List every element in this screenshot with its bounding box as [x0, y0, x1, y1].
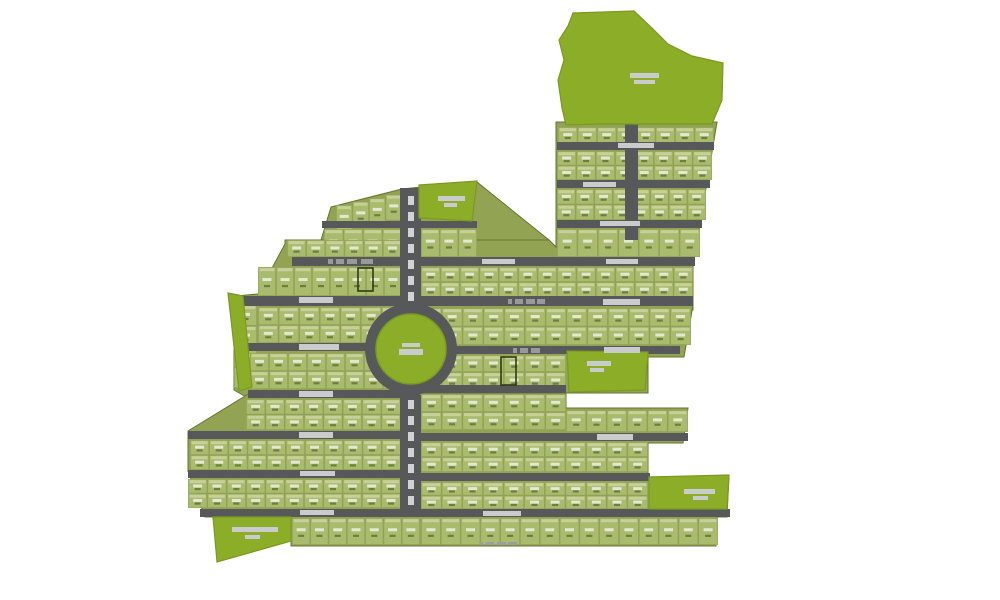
plot-number-label: [305, 314, 314, 317]
plot-area-text: [470, 451, 476, 453]
plot[interactable]: [312, 267, 329, 295]
plot-dimension-strip: [599, 128, 615, 131]
plot-dimension-strip: [384, 241, 400, 244]
plot-area-text: [428, 466, 434, 468]
plot[interactable]: [560, 518, 579, 544]
plot-area-text: [638, 199, 644, 201]
road-name-strip: [482, 259, 515, 264]
plot-area-text: [300, 285, 306, 287]
plot-number-label: [426, 528, 435, 531]
plot[interactable]: [481, 518, 500, 544]
plot-dimension-strip: [342, 326, 359, 329]
plot-dimension-strip: [248, 416, 264, 419]
road-name-strip: [300, 510, 334, 515]
plot-area-text: [264, 285, 270, 287]
plot-dimension-strip: [383, 456, 399, 459]
plot-number-label: [640, 288, 649, 291]
plot-area-text: [602, 160, 608, 162]
plot-dimension-strip: [520, 268, 536, 271]
plot[interactable]: [311, 518, 328, 544]
plot-number-label: [195, 446, 204, 449]
plot-area-text: [641, 276, 647, 278]
plot-area-text: [254, 449, 260, 451]
plot-number-label: [446, 273, 455, 276]
plot-number-label: [387, 485, 396, 488]
plot-dimension-strip: [581, 519, 598, 522]
plot-number-label: [583, 133, 592, 136]
road-horizontal: [322, 221, 477, 228]
plot-area-text: [573, 466, 579, 468]
plot-dimension-strip: [546, 497, 563, 500]
plot-area-text: [694, 214, 700, 216]
plot[interactable]: [421, 518, 440, 544]
plot[interactable]: [520, 518, 539, 544]
plot-area-text: [552, 490, 558, 492]
plot-dimension-strip: [249, 456, 265, 459]
plot-area-text: [603, 291, 609, 293]
plot-number-label: [446, 288, 455, 291]
plot-number-label: [613, 463, 622, 466]
plot-number-label: [331, 360, 340, 363]
plot-number-label: [510, 361, 519, 364]
plot-number-label: [504, 288, 513, 291]
plot-dimension-strip: [500, 268, 516, 271]
plot-dimension-strip: [306, 400, 322, 403]
plot-area-text: [635, 451, 641, 453]
plot-number-label: [562, 288, 571, 291]
plot-area-text: [349, 424, 355, 426]
plot-area-text: [253, 502, 259, 504]
plot-dimension-strip: [568, 411, 585, 414]
plot-area-text: [448, 535, 454, 537]
plot-number-label: [562, 195, 571, 198]
plot-number-label: [571, 463, 580, 466]
plot-dimension-strip: [383, 480, 399, 483]
plot-number-label: [264, 332, 273, 335]
plot-area-text: [662, 137, 668, 139]
plot-number-label: [562, 157, 571, 160]
plot-number-label: [315, 528, 324, 531]
plot[interactable]: [292, 518, 309, 544]
plot-dimension-strip: [342, 308, 359, 311]
road-name-dash: [513, 348, 517, 353]
plot-dimension-strip: [403, 519, 418, 522]
plot-number-label: [601, 273, 610, 276]
plot-area-text: [505, 291, 511, 293]
scale-text: [497, 542, 506, 545]
plot-number-label: [352, 528, 361, 531]
plot-number-label: [523, 288, 532, 291]
plot-area-text: [447, 276, 453, 278]
plot-band: [421, 518, 717, 544]
plot-number-label: [692, 210, 701, 213]
road-name-dash: [328, 259, 333, 264]
plot-number-label: [593, 334, 602, 337]
plot-number-label: [348, 420, 357, 423]
plot-number-label: [530, 419, 539, 422]
plot-number-label: [445, 240, 454, 243]
plot-dimension-strip: [384, 230, 400, 233]
plot-dimension-strip: [505, 443, 522, 446]
plot-dimension-strip: [326, 456, 342, 459]
plot-dimension-strip: [567, 483, 584, 486]
plot[interactable]: [461, 518, 480, 544]
plot-area-text: [552, 466, 558, 468]
plot-dimension-strip: [652, 206, 667, 209]
plot-number-label: [523, 273, 532, 276]
plot-dimension-strip: [539, 283, 555, 286]
plot-number-label: [353, 278, 362, 281]
plot-number-label: [489, 463, 498, 466]
plot-area-text: [511, 423, 517, 425]
plot-number-label: [572, 418, 581, 421]
plot[interactable]: [580, 518, 599, 544]
plot-number-label: [348, 485, 357, 488]
plot-area-text: [298, 535, 304, 537]
plot-dimension-strip: [547, 373, 565, 376]
plot-dimension-strip: [651, 328, 669, 331]
plot-area-text: [286, 336, 292, 338]
plot-area-text: [351, 251, 357, 253]
plot-area-text: [635, 466, 641, 468]
plot-number-label: [633, 418, 642, 421]
plot-area-text: [265, 336, 271, 338]
plot-area-text: [428, 291, 434, 293]
plot-dimension-strip: [290, 354, 306, 357]
plot-area-text: [525, 291, 531, 293]
plot[interactable]: [659, 518, 678, 544]
road-median-dash: [408, 416, 414, 425]
plot-area-text: [565, 137, 571, 139]
plot-area-text: [276, 382, 282, 384]
plot[interactable]: [276, 267, 293, 295]
road-median-dash: [408, 432, 414, 441]
road-horizontal: [421, 473, 650, 481]
plot-number-label: [447, 448, 456, 451]
plot-number-label: [583, 240, 592, 243]
plot-dimension-strip: [248, 400, 264, 403]
plot-dimension-strip: [346, 241, 362, 244]
plot[interactable]: [619, 518, 638, 544]
plot-area-text: [333, 364, 339, 366]
plot-area-text: [614, 451, 620, 453]
plot-dimension-strip: [286, 495, 302, 498]
plot-dimension-strip: [301, 308, 318, 311]
plot[interactable]: [680, 229, 700, 256]
plot-area-text: [564, 291, 570, 293]
plot-dimension-strip: [589, 309, 607, 312]
site-plan-canvas: [0, 0, 1000, 600]
road-name-dash: [508, 299, 512, 304]
road-horizontal: [421, 433, 688, 441]
plot-dimension-strip: [286, 416, 302, 419]
road-name-strip: [299, 391, 333, 397]
plot[interactable]: [598, 229, 618, 256]
plot-area-text: [330, 502, 336, 504]
plot[interactable]: [600, 518, 619, 544]
plot-dimension-strip: [640, 519, 657, 522]
plot-area-text: [390, 535, 396, 537]
plot-dimension-strip: [526, 497, 543, 500]
plot-area-text: [333, 382, 339, 384]
plot-area-text: [527, 535, 533, 537]
plot-number-label: [333, 528, 342, 531]
plot-number-label: [644, 240, 653, 243]
plot-area-text: [584, 137, 590, 139]
plot-number-label: [463, 240, 472, 243]
plot-dimension-strip: [464, 483, 481, 486]
plot-dimension-strip: [526, 483, 543, 486]
road-median-dash: [408, 276, 414, 285]
plot[interactable]: [441, 518, 460, 544]
plot-number-label: [489, 334, 498, 337]
plot-dimension-strip: [190, 480, 206, 483]
plot-area-text: [505, 276, 511, 278]
plot-number-label: [348, 446, 357, 449]
plot-area-text: [532, 366, 538, 368]
plot-dimension-strip: [596, 190, 611, 193]
road-name-strip: [603, 299, 640, 305]
plot[interactable]: [660, 229, 680, 256]
plot[interactable]: [557, 229, 577, 256]
plot-area-text: [272, 409, 278, 411]
plot-area-text: [603, 276, 609, 278]
plot-number-label: [531, 334, 540, 337]
open-space-east-mid-label: [587, 361, 611, 366]
plot-area-text: [553, 366, 559, 368]
plot-area-text: [661, 160, 667, 162]
plot-number-label: [426, 240, 435, 243]
plot-dimension-strip: [660, 519, 677, 522]
master-plan: [0, 0, 1000, 600]
plot-area-text: [490, 490, 496, 492]
plot-dimension-strip: [267, 480, 283, 483]
plot[interactable]: [384, 267, 401, 295]
plot-area-text: [635, 490, 641, 492]
plot-number-label: [551, 361, 560, 364]
plot-area-text: [634, 424, 640, 426]
plot-dimension-strip: [461, 268, 477, 271]
plot[interactable]: [699, 518, 718, 544]
plot-area-text: [470, 490, 476, 492]
plot-number-label: [614, 334, 623, 337]
plot-dimension-strip: [597, 283, 613, 286]
plot-dimension-strip: [423, 458, 440, 461]
plot[interactable]: [258, 267, 275, 295]
open-space-top-center-label: [444, 203, 457, 207]
plot-dimension-strip: [267, 400, 283, 403]
plot-area-text: [257, 382, 263, 384]
plot-dimension-strip: [386, 268, 401, 271]
plot-dimension-strip: [636, 268, 652, 271]
plot-area-text: [388, 502, 394, 504]
plot-dimension-strip: [526, 309, 544, 312]
plot-area-text: [582, 214, 588, 216]
plot-dimension-strip: [327, 241, 343, 244]
plot-dimension-strip: [371, 199, 384, 202]
plot-number-label: [255, 378, 264, 381]
plot-area-text: [313, 251, 319, 253]
plot-area-text: [286, 318, 292, 320]
plot-number-label: [427, 419, 436, 422]
plot-number-label: [572, 334, 581, 337]
plot[interactable]: [501, 518, 520, 544]
plot-area-text: [348, 318, 354, 320]
plot-number-label: [613, 448, 622, 451]
plot-number-label: [692, 195, 701, 198]
plot-area-text: [552, 451, 558, 453]
plot-dimension-strip: [640, 230, 657, 233]
plot-dimension-strip: [326, 441, 342, 444]
plot[interactable]: [540, 518, 559, 544]
plot-area-text: [470, 366, 476, 368]
plot-dimension-strip: [680, 519, 697, 522]
plot-number-label: [599, 210, 608, 213]
plot-area-text: [656, 214, 662, 216]
plot-area-text: [532, 405, 538, 407]
plot-area-text: [511, 466, 517, 468]
plot[interactable]: [294, 267, 311, 295]
plot-number-label: [272, 461, 281, 464]
plot-area-text: [449, 490, 455, 492]
plot-number-label: [592, 501, 601, 504]
plot-area-text: [532, 319, 538, 321]
plot-area-text: [511, 319, 517, 321]
plot-number-label: [468, 501, 477, 504]
plot-area-text: [449, 383, 455, 385]
plot-number-label: [676, 315, 685, 318]
plot-number-label: [346, 314, 355, 317]
plot[interactable]: [459, 229, 477, 256]
plot-number-label: [545, 528, 554, 531]
plot[interactable]: [639, 518, 658, 544]
plot-area-text: [626, 535, 632, 537]
plot-area-text: [265, 318, 271, 320]
plot-number-label: [193, 499, 202, 502]
plot-number-label: [592, 463, 601, 466]
plot[interactable]: [402, 518, 419, 544]
plot-number-label: [551, 463, 560, 466]
plot-dimension-strip: [578, 283, 594, 286]
plot-area-text: [253, 488, 259, 490]
plot-area-text: [370, 251, 376, 253]
plot-dimension-strip: [506, 309, 524, 312]
plot-area-text: [615, 338, 621, 340]
plot[interactable]: [639, 229, 659, 256]
road-name-strip: [600, 221, 640, 226]
plot-dimension-strip: [314, 268, 329, 271]
road-median-dash: [408, 212, 414, 221]
plot-dimension-strip: [629, 411, 646, 414]
plot-number-label: [635, 315, 644, 318]
plot-dimension-strip: [482, 519, 499, 522]
plot-number-label: [655, 315, 664, 318]
plot-area-text: [675, 199, 681, 201]
plot-number-label: [426, 273, 435, 276]
plot[interactable]: [329, 518, 346, 544]
plot-area-text: [428, 405, 434, 407]
plot-dimension-strip: [365, 230, 381, 233]
plot-area-text: [272, 488, 278, 490]
plot-area-text: [490, 504, 496, 506]
plot-area-text: [511, 405, 517, 407]
plot[interactable]: [440, 229, 458, 256]
plot-number-label: [698, 171, 707, 174]
plot-dimension-strip: [190, 495, 206, 498]
plot-dimension-strip: [608, 483, 625, 486]
plot-dimension-strip: [260, 268, 275, 271]
plot-dimension-strip: [345, 441, 361, 444]
plot-dimension-strip: [559, 230, 576, 233]
plot-dimension-strip: [364, 400, 380, 403]
plot-number-label: [446, 528, 455, 531]
plot-number-label: [293, 360, 302, 363]
plot-area-text: [388, 424, 394, 426]
plot-dimension-strip: [385, 519, 400, 522]
plot-area-text: [314, 364, 320, 366]
plot[interactable]: [330, 267, 347, 295]
plot-dimension-strip: [383, 441, 399, 444]
plot-number-label: [232, 485, 241, 488]
plot-number-label: [387, 446, 396, 449]
plot-dimension-strip: [567, 497, 584, 500]
plot-area-text: [678, 319, 684, 321]
plot-dimension-strip: [464, 443, 481, 446]
plot-dimension-strip: [588, 483, 605, 486]
plot-number-label: [329, 405, 338, 408]
plot-area-text: [253, 424, 259, 426]
plot-area-text: [235, 464, 241, 466]
plot-number-label: [348, 461, 357, 464]
plot[interactable]: [347, 518, 364, 544]
plot-dimension-strip: [638, 128, 654, 131]
plot-area-text: [646, 535, 652, 537]
plot-area-text: [427, 246, 433, 248]
plot-area-text: [449, 319, 455, 321]
plot[interactable]: [366, 518, 383, 544]
plot-area-text: [291, 502, 297, 504]
plot-area-text: [428, 423, 434, 425]
plot-area-text: [586, 535, 592, 537]
plot-dimension-strip: [443, 443, 460, 446]
plot[interactable]: [384, 518, 401, 544]
plot-dimension-strip: [442, 268, 458, 271]
plot-number-label: [593, 315, 602, 318]
plot-number-label: [350, 378, 359, 381]
plot[interactable]: [679, 518, 698, 544]
plot[interactable]: [421, 229, 439, 256]
plot-number-label: [582, 288, 591, 291]
plot-dimension-strip: [546, 443, 563, 446]
plot-number-label: [335, 278, 344, 281]
plot-dimension-strip: [347, 354, 363, 357]
plot-dimension-strip: [559, 152, 575, 155]
plot-number-label: [665, 240, 674, 243]
plot-number-label: [698, 157, 707, 160]
plot-number-label: [659, 273, 668, 276]
plot-number-label: [572, 315, 581, 318]
plot-dimension-strip: [630, 309, 648, 312]
plot-dimension-strip: [505, 395, 523, 398]
open-space-south-east-label: [693, 496, 708, 500]
plot-dimension-strip: [442, 283, 458, 286]
plot[interactable]: [578, 229, 598, 256]
plot-number-label: [592, 487, 601, 490]
open-space-north-label: [634, 80, 655, 84]
plot-dimension-strip: [364, 456, 380, 459]
plot-number-label: [633, 487, 642, 490]
plot-dimension-strip: [367, 519, 382, 522]
